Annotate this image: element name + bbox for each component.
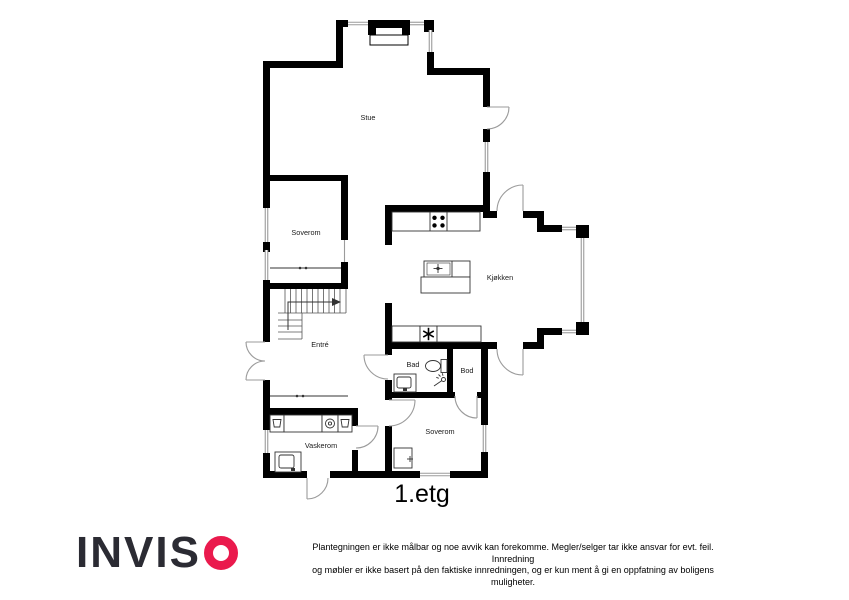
room-label-bad: Bad: [407, 360, 420, 369]
disclaimer-line2: og møbler er ikke basert på den faktiske…: [298, 565, 728, 588]
floor-label: 1.etg: [394, 480, 450, 508]
stairs-icon: [278, 289, 346, 339]
inviso-logo: INVIS: [76, 533, 238, 573]
room-label-kjokken: Kjøkken: [487, 273, 513, 282]
window-inner-lines: [267, 24, 583, 475]
logo-o-icon: [204, 536, 238, 570]
fireplace-icon: [368, 20, 410, 45]
laundry-sink-icon: [275, 452, 301, 472]
room-label-bod: Bod: [461, 366, 474, 375]
floorplan-page: Stue Soverom Kjøkken Entré Bad Bod Sover…: [0, 0, 849, 600]
hall-cabinet-row: [392, 326, 481, 342]
room-label-entre: Entré: [311, 340, 328, 349]
bedroom-closet: [394, 448, 413, 468]
room-label-stue: Stue: [360, 113, 375, 122]
kitchen-island: [421, 261, 470, 293]
disclaimer: Plantegningen er ikke målbar og noe avvi…: [298, 542, 728, 588]
toilet-icon: [426, 360, 448, 373]
laundry-counter: [270, 415, 352, 432]
room-label-soverom-2: Soverom: [425, 427, 454, 436]
shower-icon: [434, 373, 446, 386]
windows: [267, 24, 583, 475]
room-label-soverom-1: Soverom: [291, 228, 320, 237]
disclaimer-line1: Plantegningen er ikke målbar og noe avvi…: [298, 542, 728, 565]
room-label-vaskerom: Vaskerom: [305, 441, 337, 450]
kitchen-counter: [392, 212, 480, 231]
logo-text: INVIS: [76, 533, 201, 573]
bathroom-sink-icon: [394, 374, 416, 392]
floorplan-svg: Stue Soverom Kjøkken Entré Bad Bod Sover…: [0, 0, 849, 600]
